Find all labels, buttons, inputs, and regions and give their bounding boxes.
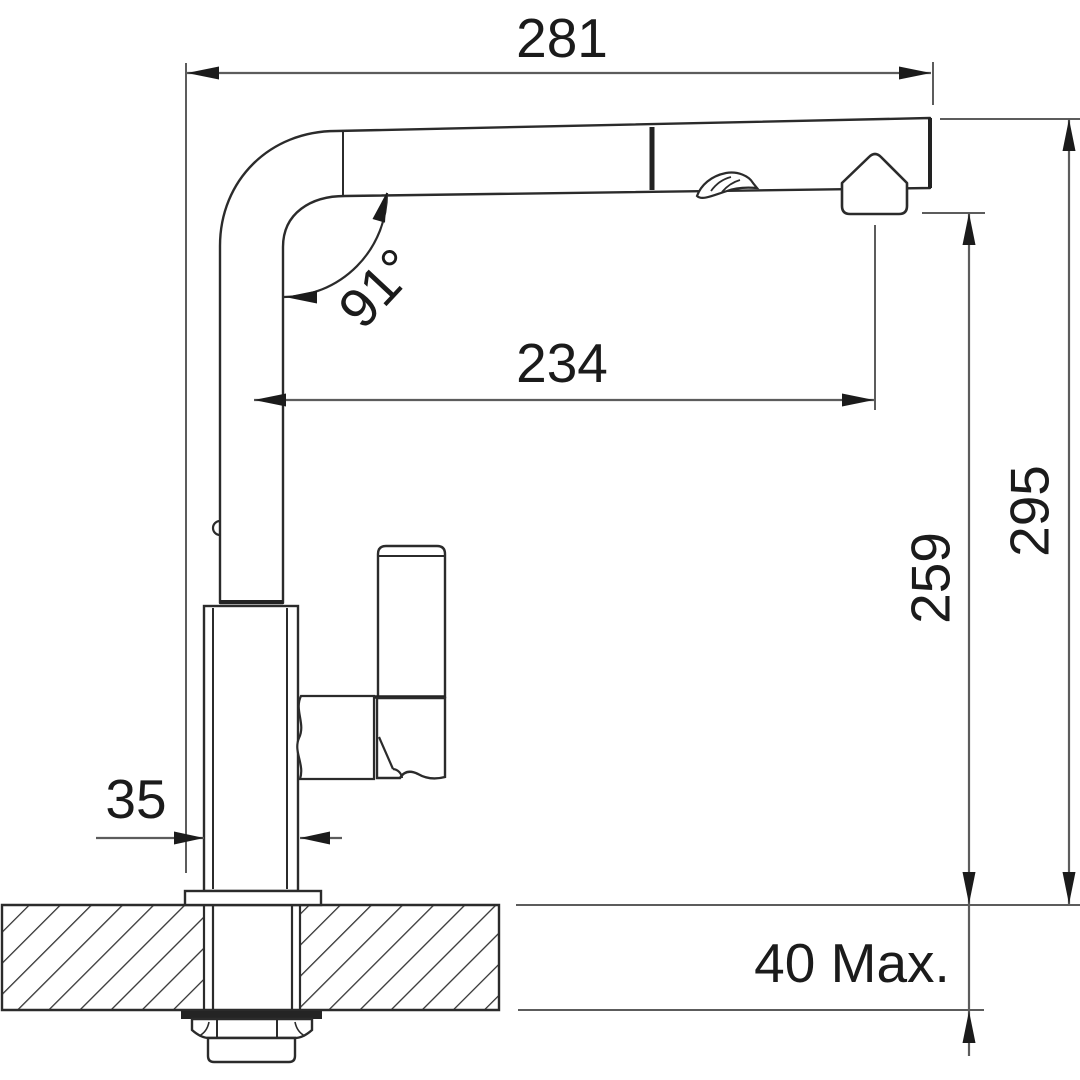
dim-35-arrow-left [174, 832, 204, 845]
dim-40-arrow [963, 1011, 976, 1043]
dim-281-arrow-right [899, 67, 931, 80]
dim-295-arrow-top [1063, 119, 1076, 151]
dim-234-arrow-right [842, 394, 874, 407]
label-outlet-height: 259 [899, 532, 961, 624]
mounting-nut [192, 1019, 312, 1038]
label-overall-height: 295 [998, 465, 1060, 557]
base-plate [185, 891, 321, 905]
counter-hatch-right [300, 905, 499, 1010]
dim-35-arrow-right [300, 832, 330, 845]
label-body-width: 35 [105, 768, 166, 830]
faucet-dimension-drawing: 281 234 91° 295 259 35 40 Max. [0, 0, 1080, 1080]
dim-259-arrow-bottom [963, 872, 976, 904]
dim-259-arrow-top [963, 213, 976, 245]
label-spout-angle: 91° [326, 237, 428, 340]
label-spout-reach: 234 [516, 332, 608, 394]
label-overall-width: 281 [516, 7, 608, 69]
technical-drawing-canvas: 281 234 91° 295 259 35 40 Max. [0, 0, 1080, 1080]
counter-section [2, 905, 499, 1010]
faucet-body-column [204, 606, 298, 891]
dim-angle-arrow-lower [285, 291, 317, 304]
faucet [181, 118, 930, 1062]
lever-connector [377, 698, 445, 778]
dim-295-arrow-bottom [1063, 872, 1076, 904]
label-deck-thickness: 40 Max. [754, 932, 950, 994]
dim-281-arrow-left [187, 67, 219, 80]
counter-hatch-left [2, 905, 204, 1010]
handle-lever [378, 546, 445, 697]
valve-block [297, 696, 374, 779]
supply-shank-end [208, 1038, 295, 1062]
